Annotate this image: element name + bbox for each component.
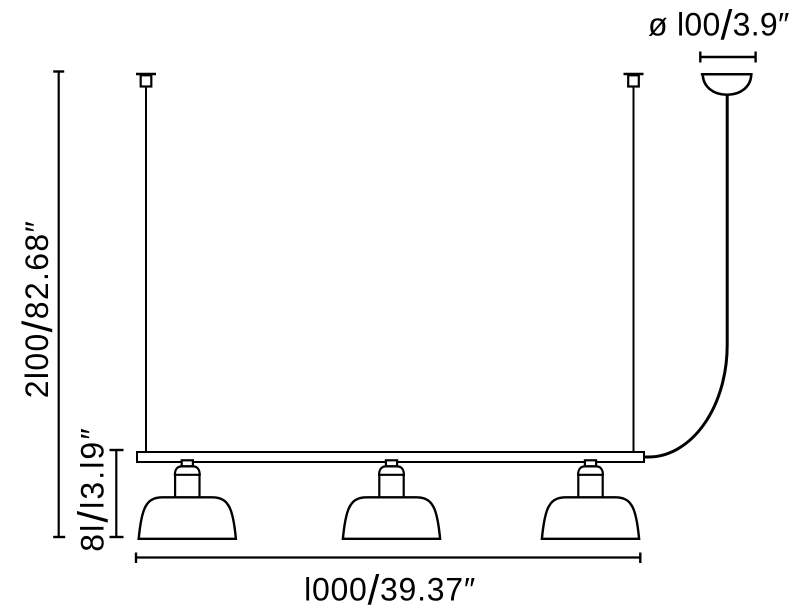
svg-text:l000/39.37″: l000/39.37″ <box>304 567 476 614</box>
svg-text:ø l00/3.9″: ø l00/3.9″ <box>648 2 790 49</box>
svg-text:2l00/82.68″: 2l00/82.68″ <box>14 220 61 398</box>
svg-text:8l/l3.l9″: 8l/l3.l9″ <box>70 426 117 552</box>
